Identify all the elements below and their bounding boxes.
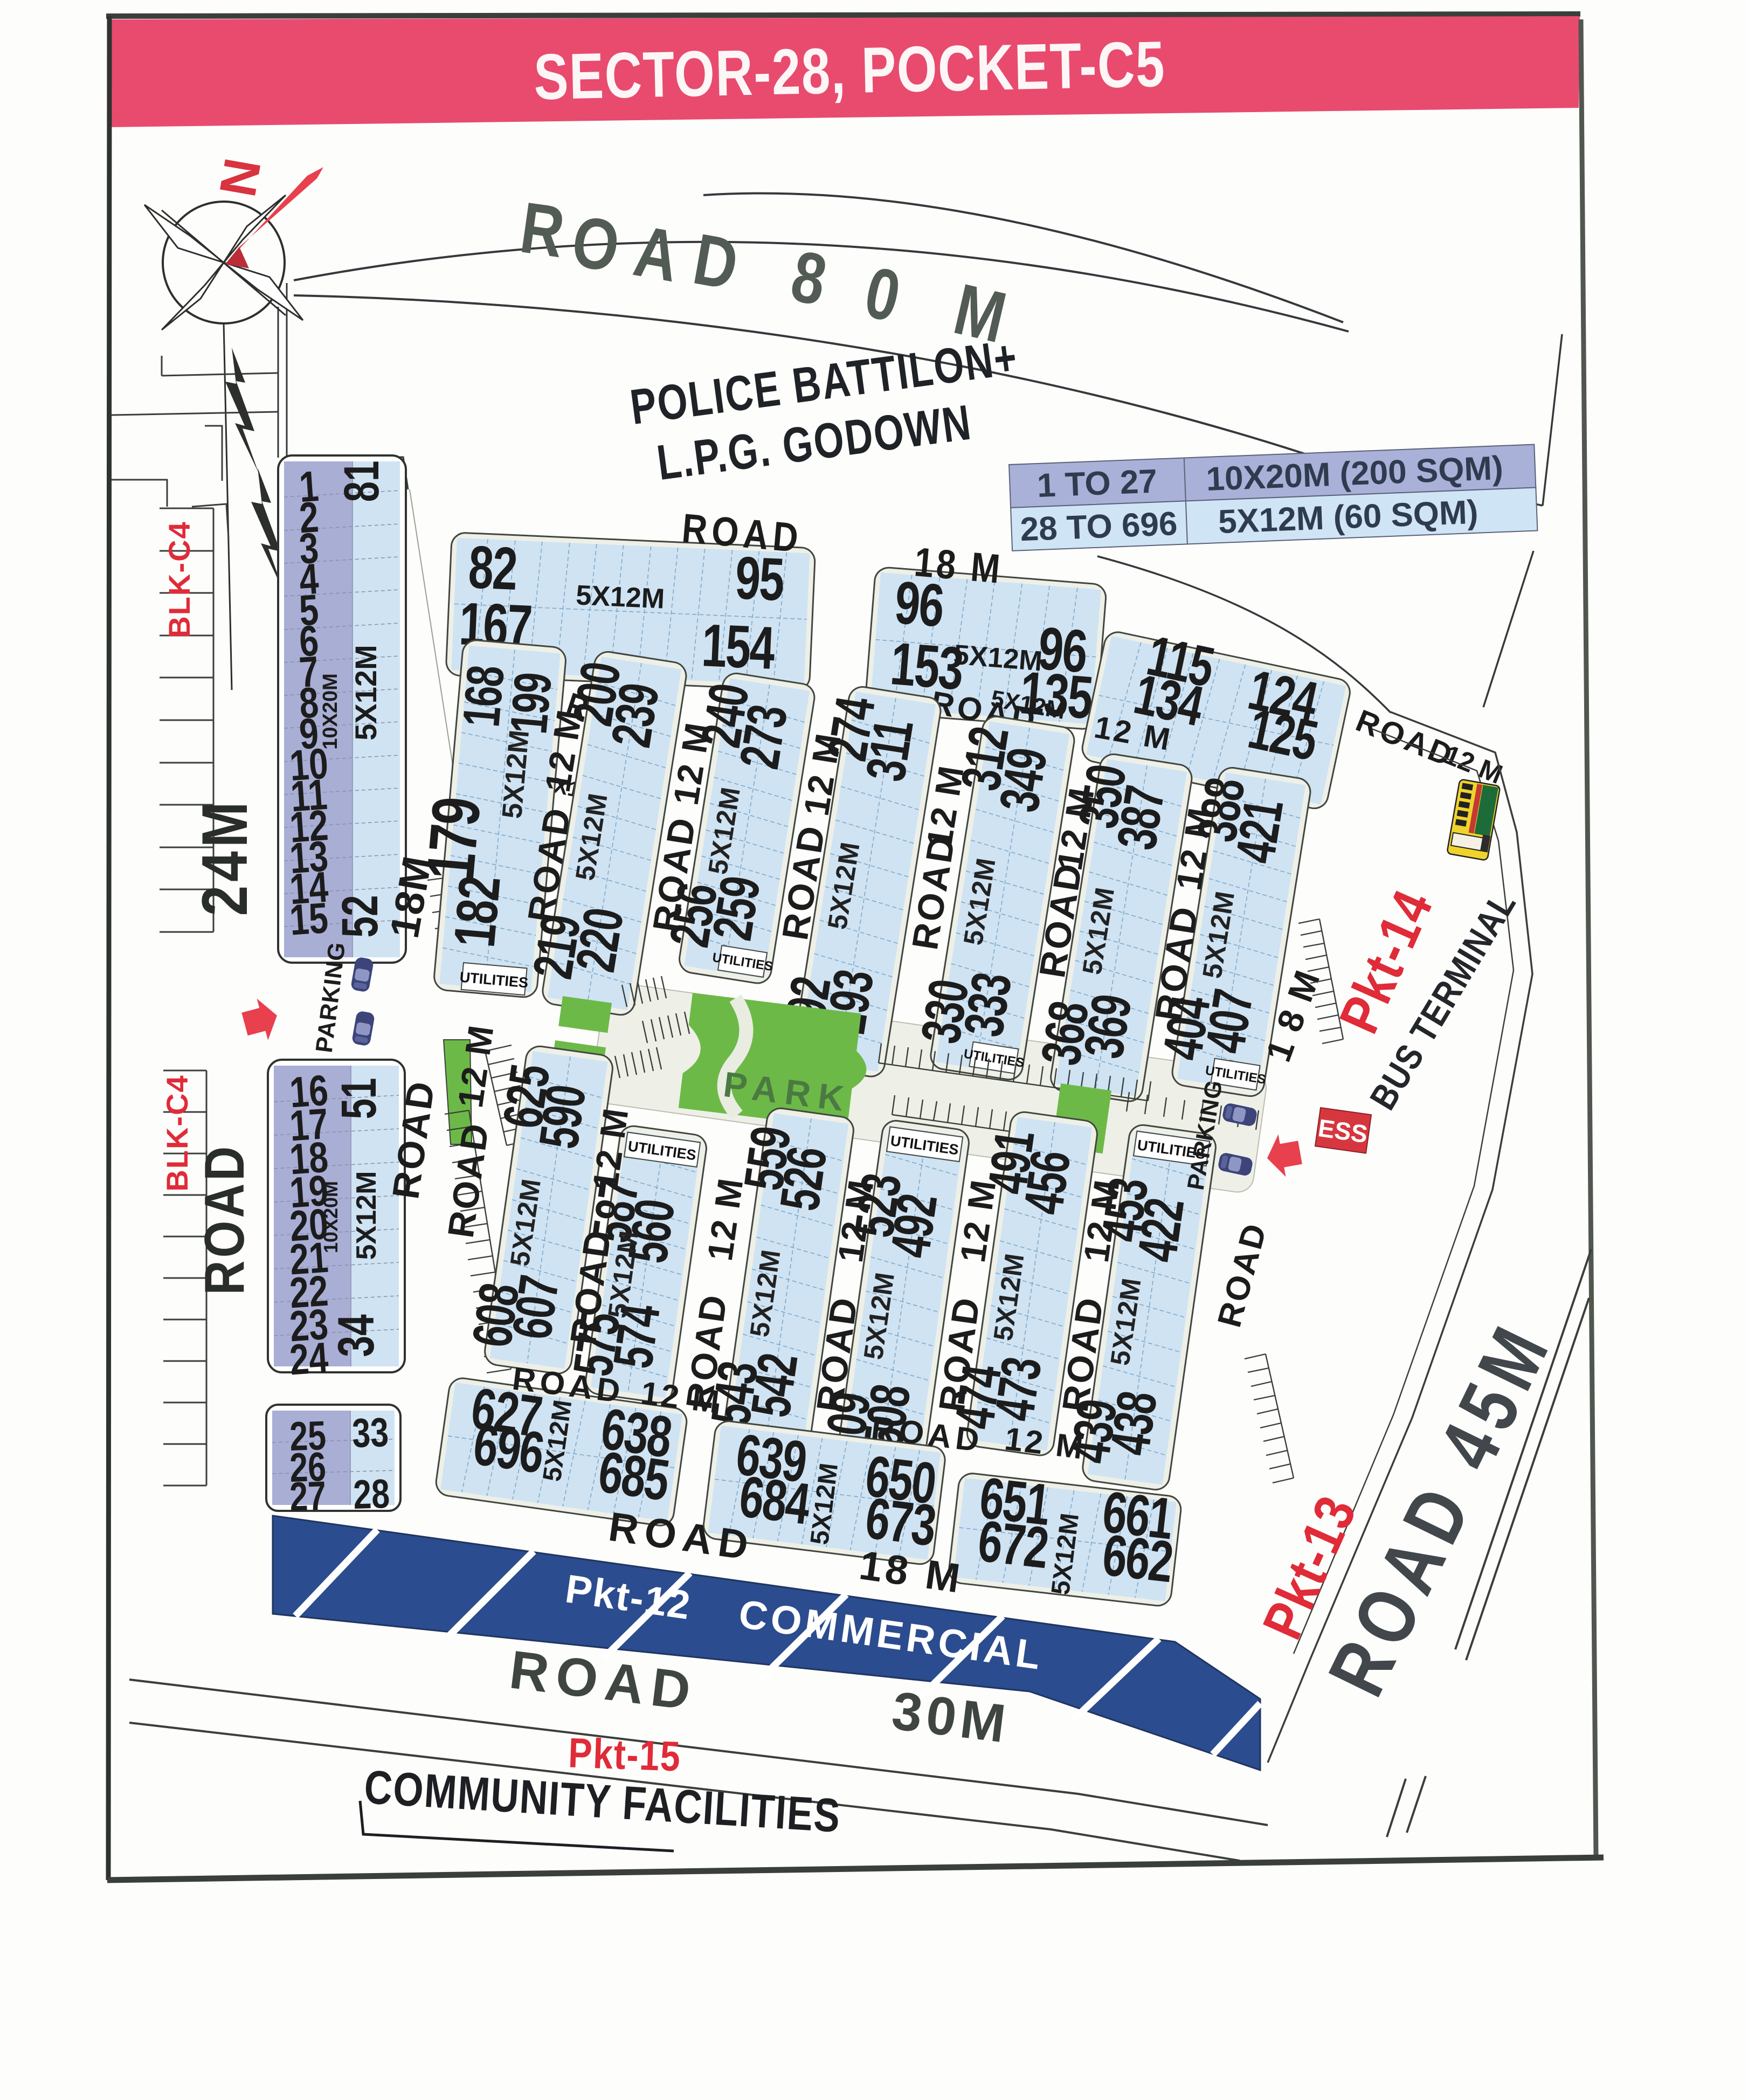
svg-text:34: 34 xyxy=(327,1314,384,1357)
svg-text:10X20M: 10X20M xyxy=(320,1181,342,1253)
svg-text:28: 28 xyxy=(353,1470,391,1517)
svg-text:5X12M: 5X12M xyxy=(575,579,665,614)
svg-text:27: 27 xyxy=(289,1473,327,1519)
svg-text:5X12M: 5X12M xyxy=(349,645,383,740)
svg-text:369: 369 xyxy=(1072,991,1143,1062)
svg-text:662: 662 xyxy=(1100,1523,1176,1595)
svg-text:18 M: 18 M xyxy=(913,538,1005,592)
svg-text:28 TO 696: 28 TO 696 xyxy=(1019,505,1178,548)
svg-text:5X12M: 5X12M xyxy=(351,1171,382,1260)
svg-text:685: 685 xyxy=(595,1440,672,1514)
svg-text:BLK-C4: BLK-C4 xyxy=(160,1074,194,1191)
svg-text:407: 407 xyxy=(1194,986,1265,1058)
svg-text:220: 220 xyxy=(564,904,635,976)
svg-text:349: 349 xyxy=(988,744,1059,816)
svg-text:542: 542 xyxy=(740,1350,810,1421)
svg-text:387: 387 xyxy=(1106,782,1176,854)
svg-text:696: 696 xyxy=(469,1412,547,1486)
svg-text:SECTOR-28, POCKET-C5: SECTOR-28, POCKET-C5 xyxy=(533,29,1166,114)
svg-text:492: 492 xyxy=(879,1191,949,1261)
svg-text:239: 239 xyxy=(600,680,671,751)
svg-text:52: 52 xyxy=(331,895,388,937)
svg-text:333: 333 xyxy=(952,969,1023,1041)
svg-text:590: 590 xyxy=(527,1082,597,1152)
svg-text:1 TO 27: 1 TO 27 xyxy=(1037,462,1158,505)
svg-text:Pkt-15: Pkt-15 xyxy=(568,1729,682,1780)
svg-text:273: 273 xyxy=(728,701,799,773)
svg-text:81: 81 xyxy=(334,461,389,502)
svg-text:24M: 24M xyxy=(188,798,261,916)
svg-text:ROAD: ROAD xyxy=(194,1144,255,1295)
svg-text:473: 473 xyxy=(983,1354,1053,1425)
svg-text:311: 311 xyxy=(854,716,925,785)
svg-text:24: 24 xyxy=(288,1334,329,1384)
svg-text:182: 182 xyxy=(443,874,513,950)
svg-text:672: 672 xyxy=(975,1509,1051,1581)
svg-text:421: 421 xyxy=(1224,796,1295,867)
svg-text:526: 526 xyxy=(768,1144,838,1214)
svg-text:33: 33 xyxy=(351,1409,390,1456)
svg-text:438: 438 xyxy=(1098,1388,1169,1459)
svg-text:51: 51 xyxy=(331,1078,386,1120)
svg-text:259: 259 xyxy=(701,873,771,944)
svg-text:BLK-C4: BLK-C4 xyxy=(162,521,196,638)
svg-text:10X20M: 10X20M xyxy=(319,673,342,750)
svg-text:15: 15 xyxy=(288,894,329,944)
svg-text:607: 607 xyxy=(501,1272,571,1343)
svg-text:154: 154 xyxy=(700,611,776,681)
svg-text:422: 422 xyxy=(1125,1195,1196,1266)
svg-text:456: 456 xyxy=(1012,1148,1082,1218)
